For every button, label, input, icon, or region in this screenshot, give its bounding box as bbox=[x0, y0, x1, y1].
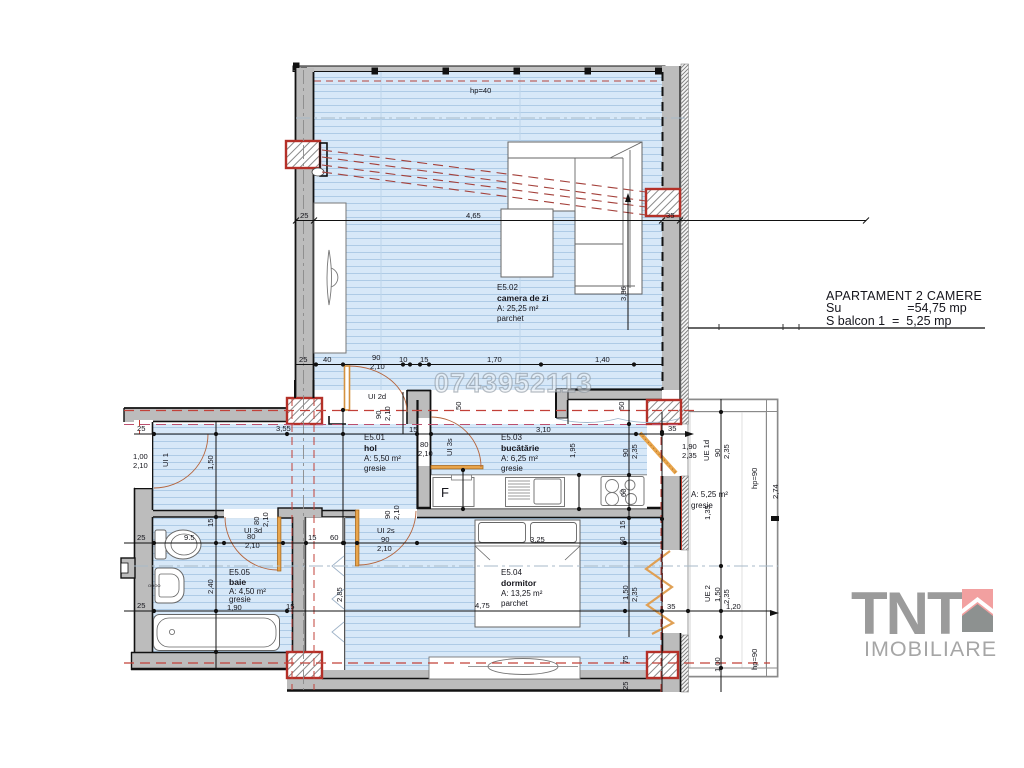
svg-text:OOOO: OOOO bbox=[148, 583, 160, 588]
svg-text:F: F bbox=[441, 485, 449, 500]
